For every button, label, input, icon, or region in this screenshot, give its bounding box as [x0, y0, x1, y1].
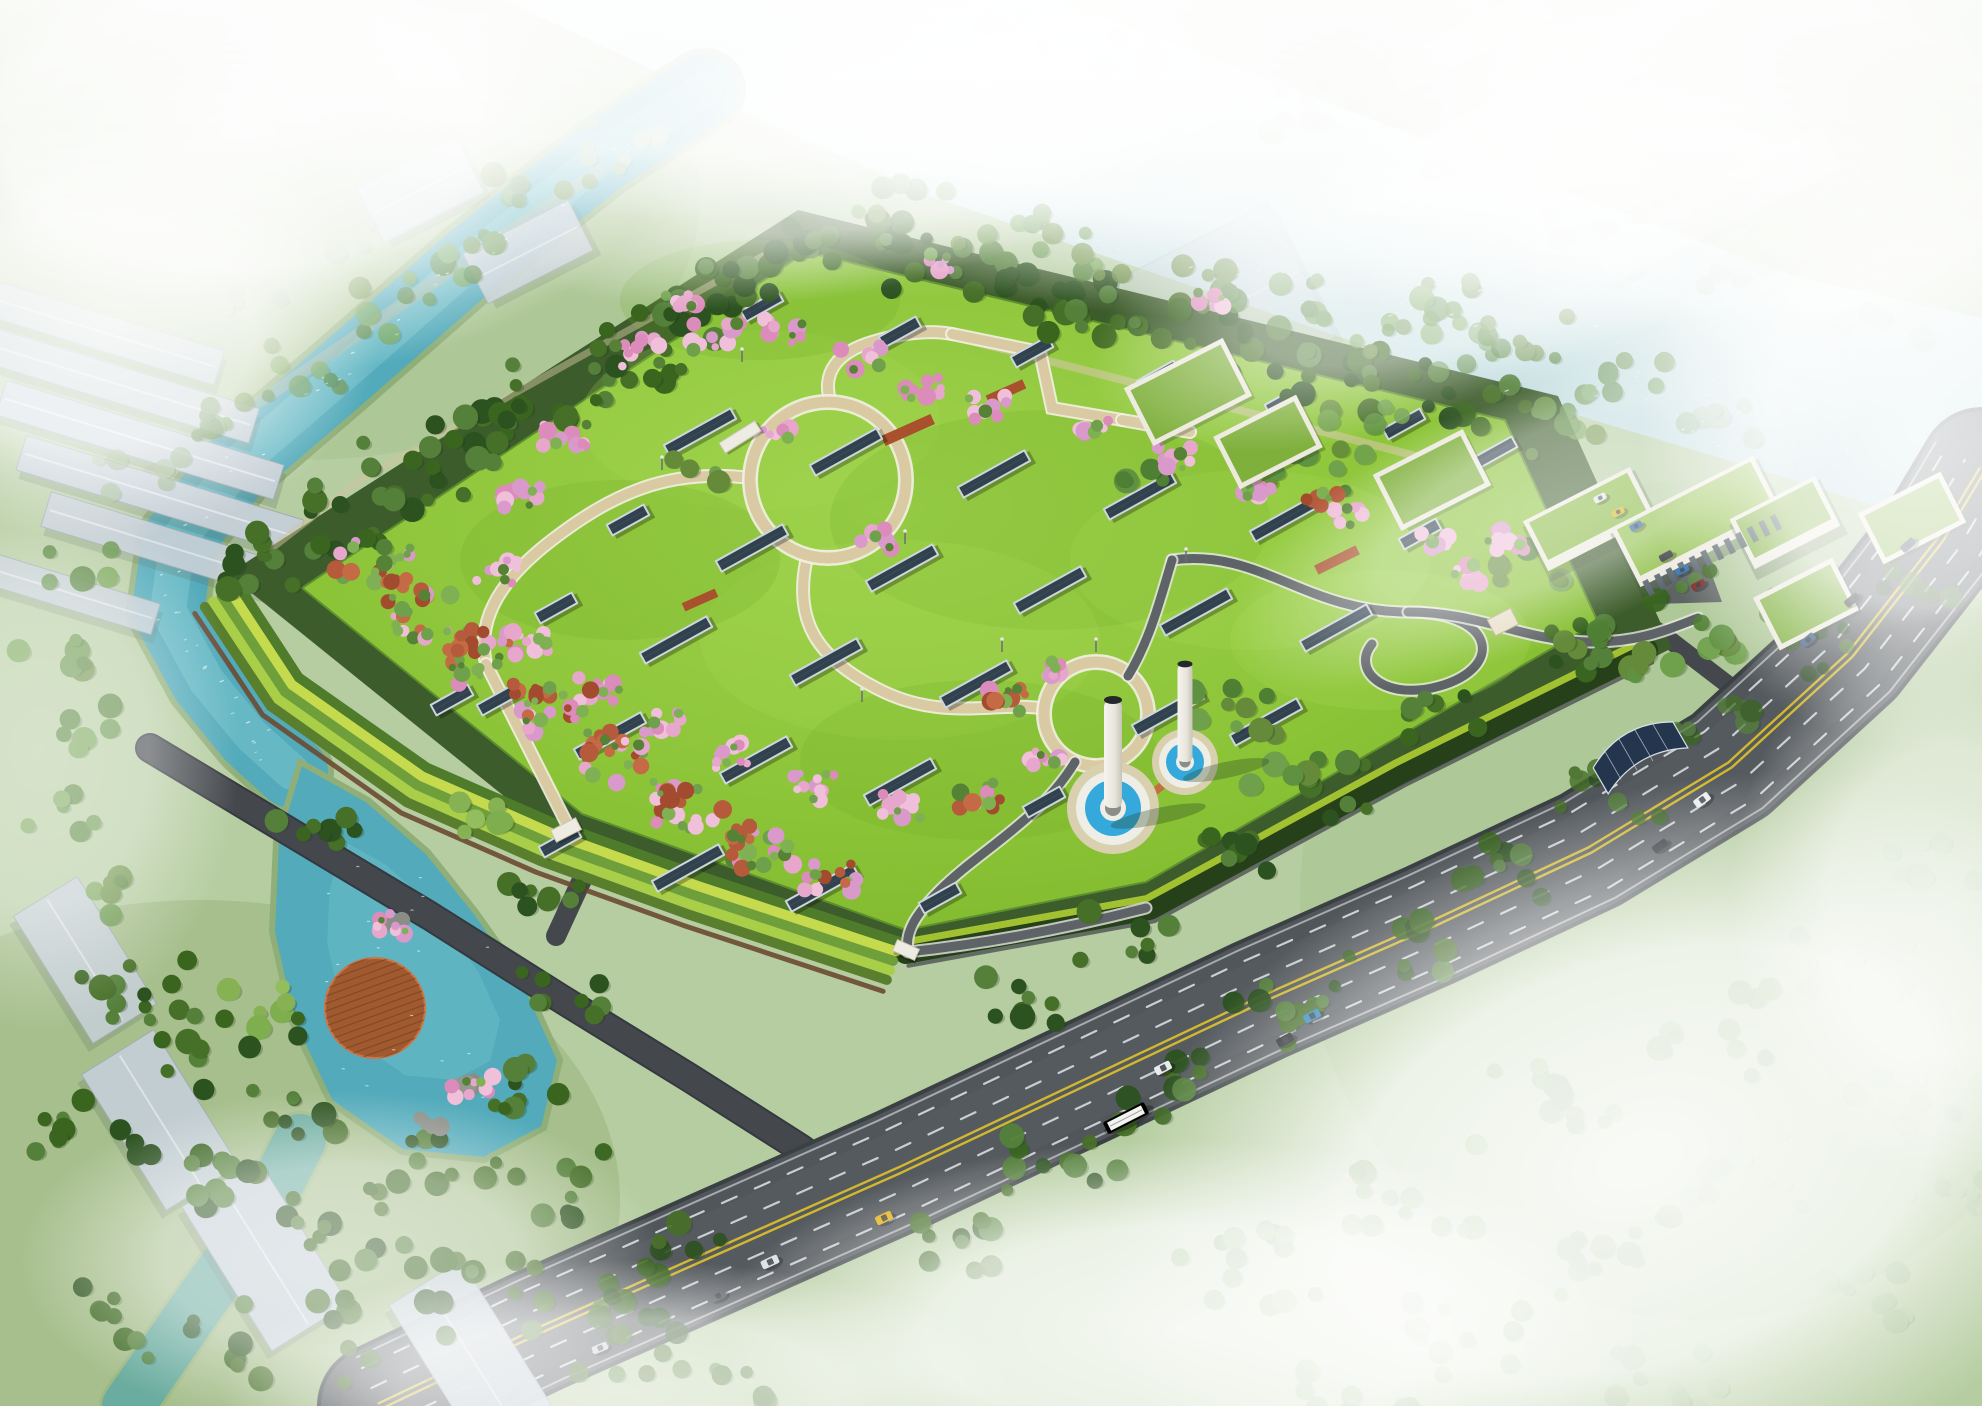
blossom	[814, 785, 826, 797]
tree	[285, 577, 301, 593]
tower-top-opening	[1178, 661, 1193, 668]
bush	[609, 339, 622, 352]
bush	[650, 778, 658, 786]
blossom	[768, 827, 785, 844]
tree	[1259, 688, 1275, 704]
bush	[389, 594, 396, 601]
blossom	[1301, 493, 1313, 505]
tree	[403, 451, 422, 470]
tree	[217, 978, 241, 1002]
blossom	[813, 774, 822, 783]
tree	[215, 1009, 234, 1028]
pond-sparkle	[410, 910, 413, 911]
pond-sparkle	[327, 893, 330, 894]
blossom	[854, 534, 868, 548]
tree	[1583, 656, 1597, 670]
blossom	[829, 770, 838, 779]
lamp-head	[1184, 547, 1188, 551]
blossom	[507, 647, 523, 663]
tree	[291, 1011, 305, 1025]
tree	[999, 1123, 1024, 1148]
bush	[674, 708, 684, 718]
tree	[288, 1026, 307, 1045]
rendering-canvas	[0, 0, 1982, 1406]
bush	[988, 778, 999, 789]
lamp-head	[1000, 637, 1004, 641]
tree	[557, 405, 579, 427]
tree	[675, 363, 687, 375]
bush	[543, 681, 557, 695]
tree	[49, 1127, 68, 1146]
tree	[453, 404, 478, 429]
blossom	[608, 774, 625, 791]
bush	[443, 627, 451, 635]
tree	[426, 415, 445, 434]
tree	[510, 379, 522, 391]
tree	[588, 362, 601, 375]
tree	[193, 1079, 214, 1100]
pond-sparkle	[342, 1068, 345, 1069]
bush	[1091, 420, 1103, 432]
blossom	[514, 565, 521, 572]
blossom	[572, 671, 585, 684]
bush	[849, 365, 858, 374]
tree	[1131, 918, 1151, 938]
pond-sparkle	[417, 950, 420, 951]
tree	[162, 975, 181, 994]
aerial-site-rendering	[0, 0, 1982, 1406]
tree	[1400, 728, 1418, 746]
tree	[1072, 952, 1088, 968]
bush	[900, 385, 909, 394]
blossom	[963, 793, 982, 812]
bush	[797, 319, 806, 328]
bush	[1005, 687, 1012, 694]
pond-sparkle	[421, 896, 424, 897]
bush	[915, 813, 925, 823]
tree	[664, 450, 683, 469]
blossom	[451, 644, 465, 658]
tree	[444, 430, 463, 449]
blossom	[333, 546, 347, 560]
blossom	[511, 556, 522, 567]
blossom	[808, 858, 820, 870]
tree	[296, 827, 311, 842]
blossom	[497, 637, 507, 647]
pond-sparkle	[336, 964, 339, 965]
tree	[1282, 765, 1303, 786]
blossom	[742, 819, 757, 834]
pond-sparkle	[356, 866, 359, 867]
blossom	[917, 387, 936, 406]
bush	[872, 358, 886, 372]
tree	[177, 951, 197, 971]
tree	[535, 971, 551, 987]
blossom	[474, 663, 484, 673]
blossom	[633, 758, 650, 775]
blossom	[706, 331, 718, 343]
tree	[529, 994, 547, 1012]
tree	[425, 460, 440, 475]
blossom	[464, 1089, 475, 1100]
tree	[680, 459, 699, 478]
tree	[713, 1233, 727, 1247]
bush	[624, 760, 633, 769]
bush	[378, 917, 385, 924]
lamp-head	[860, 687, 864, 691]
bush	[476, 672, 483, 679]
bush	[585, 773, 594, 782]
blossom	[536, 438, 551, 453]
blossom	[391, 922, 400, 931]
tree	[449, 791, 471, 813]
blossom	[1001, 397, 1012, 408]
lamp-head	[1094, 637, 1098, 641]
tree	[988, 1008, 1003, 1023]
bush	[500, 575, 510, 585]
tree	[599, 322, 615, 338]
tree	[1634, 659, 1649, 674]
blossom	[618, 362, 627, 371]
tree	[1549, 655, 1563, 669]
tree	[590, 974, 609, 993]
tree	[1235, 697, 1256, 718]
blossom	[892, 790, 907, 805]
bush	[648, 717, 660, 729]
blossom	[650, 337, 667, 354]
blossom	[394, 601, 410, 617]
tree	[974, 965, 998, 989]
tree	[245, 521, 269, 545]
tree	[574, 994, 588, 1008]
bush	[402, 928, 409, 935]
pond-sparkle	[325, 981, 328, 982]
blossom	[737, 758, 745, 766]
bush	[523, 717, 530, 724]
bush	[813, 871, 822, 880]
pond-sparkle	[410, 1015, 413, 1016]
blossom	[686, 317, 701, 332]
tree	[222, 553, 245, 576]
blossom	[878, 789, 889, 800]
blossom	[713, 800, 732, 819]
pond-sparkle	[441, 1060, 444, 1061]
tree	[493, 812, 513, 832]
tree	[72, 1089, 95, 1112]
bush	[539, 637, 552, 650]
bush	[1048, 756, 1061, 769]
fog-veil-top	[0, 0, 1982, 300]
tree	[1022, 991, 1036, 1005]
tree	[466, 809, 485, 828]
bush	[612, 743, 619, 750]
tree	[572, 880, 585, 893]
tree	[265, 809, 289, 833]
bush	[1243, 491, 1253, 501]
tree	[190, 1039, 209, 1058]
blossom	[472, 576, 481, 585]
bush	[662, 807, 676, 821]
bush	[477, 643, 490, 656]
tree	[1141, 938, 1155, 952]
blossom	[533, 713, 548, 728]
tower-cylinder	[1178, 664, 1193, 762]
blossom	[608, 695, 619, 706]
blossom	[797, 882, 812, 897]
pond-sparkle	[392, 1049, 395, 1050]
tree	[517, 896, 537, 916]
tree	[335, 807, 357, 829]
tree	[1660, 652, 1686, 678]
tree	[1468, 718, 1487, 737]
tree	[486, 431, 509, 454]
tree	[1740, 700, 1763, 723]
blossom	[969, 413, 981, 425]
bush	[582, 420, 592, 430]
blossom	[688, 819, 704, 835]
tree	[361, 457, 380, 476]
bush	[600, 735, 610, 745]
bush	[809, 795, 818, 804]
bush	[531, 697, 538, 704]
blossom	[342, 563, 360, 581]
bush	[885, 543, 893, 551]
tree	[1235, 833, 1258, 856]
lamp-head	[903, 529, 907, 533]
blossom	[564, 704, 572, 712]
bush	[458, 662, 464, 668]
tree	[376, 539, 393, 556]
bush	[747, 861, 757, 871]
bush	[1012, 684, 1022, 694]
tree	[1125, 946, 1138, 959]
tree	[456, 487, 471, 502]
blossom	[1184, 456, 1195, 467]
tree	[1569, 766, 1581, 778]
tree	[1010, 1004, 1035, 1029]
blossom	[507, 678, 520, 691]
bush	[406, 544, 415, 553]
bush	[737, 835, 745, 843]
blossom	[933, 373, 943, 383]
tree	[382, 488, 405, 511]
tree	[1329, 460, 1346, 477]
bush	[550, 437, 562, 449]
bush	[870, 530, 882, 542]
bush	[528, 487, 537, 496]
pond-sparkle	[486, 947, 489, 948]
tree	[685, 1241, 704, 1260]
bush	[730, 743, 737, 750]
blossom	[793, 785, 801, 793]
tree	[1340, 796, 1357, 813]
blossom	[835, 867, 846, 878]
tree	[1335, 750, 1360, 775]
tree	[1223, 679, 1242, 698]
tree	[215, 576, 241, 602]
blossom	[840, 878, 850, 888]
tree	[275, 980, 289, 994]
tree	[169, 999, 190, 1020]
blossom	[711, 343, 719, 351]
tree	[1047, 1014, 1065, 1032]
bush	[822, 770, 831, 779]
tower-cylinder	[1104, 700, 1122, 808]
tree	[310, 534, 330, 554]
tree	[457, 825, 472, 840]
bush	[982, 796, 996, 810]
tree	[595, 1143, 612, 1160]
blossom	[504, 623, 522, 641]
tree	[1726, 695, 1742, 711]
blossom	[376, 555, 393, 572]
tree	[590, 340, 607, 357]
tree	[511, 882, 527, 898]
bush	[686, 343, 700, 357]
blossom	[873, 340, 886, 353]
blossom	[833, 341, 849, 357]
bush	[347, 541, 359, 553]
bush	[598, 687, 609, 698]
blossom	[385, 909, 395, 919]
blossom	[477, 626, 489, 638]
tree	[1011, 979, 1026, 994]
tree	[26, 1142, 45, 1161]
blossom	[503, 556, 511, 564]
pond-sparkle	[481, 1097, 484, 1098]
tree	[186, 1008, 203, 1025]
tree	[547, 1083, 570, 1106]
tree	[1239, 773, 1263, 797]
tree	[419, 436, 441, 458]
tree	[1248, 718, 1273, 743]
tower-top-opening	[1104, 696, 1122, 704]
tree	[1458, 689, 1471, 702]
bush	[559, 690, 568, 699]
blossom	[455, 630, 466, 641]
blossom	[1013, 705, 1026, 718]
tree	[1115, 471, 1132, 488]
blossom	[639, 727, 650, 738]
bush	[633, 739, 644, 750]
bush	[615, 686, 623, 694]
blossom	[445, 1079, 459, 1093]
blossom	[1158, 457, 1176, 475]
blossom	[577, 438, 587, 448]
tree	[1681, 721, 1696, 736]
bush	[965, 394, 973, 402]
blossom	[650, 816, 662, 828]
bush	[421, 628, 433, 640]
pond-sparkle	[377, 947, 380, 948]
blossom	[921, 374, 934, 387]
tree	[1201, 827, 1220, 846]
tree	[1075, 320, 1088, 333]
tree	[161, 1064, 175, 1078]
tree	[1221, 850, 1238, 867]
tree	[1037, 321, 1060, 344]
tree	[246, 1084, 259, 1097]
blossom	[787, 770, 800, 783]
blossom	[712, 757, 722, 767]
blossom	[579, 743, 598, 762]
tree	[139, 1000, 152, 1013]
tree	[238, 1036, 261, 1059]
lamp-head	[740, 347, 744, 351]
blossom	[991, 410, 1003, 422]
blossom	[716, 745, 730, 759]
bush	[657, 790, 663, 796]
bush	[1050, 662, 1061, 673]
blossom	[522, 637, 531, 646]
lamp-head	[660, 455, 664, 459]
tree	[1158, 915, 1180, 937]
bush	[653, 357, 665, 369]
tree	[585, 1005, 604, 1024]
blossom	[768, 321, 780, 333]
bush	[730, 317, 743, 330]
tree	[562, 891, 579, 908]
tree	[277, 993, 296, 1012]
tree	[511, 398, 526, 413]
bush	[907, 394, 916, 403]
tree	[1360, 802, 1372, 814]
tree	[1230, 720, 1242, 732]
bush	[894, 807, 901, 814]
pond-sparkle	[365, 1085, 368, 1086]
bush	[393, 626, 404, 637]
blossom	[788, 339, 796, 347]
tree	[1258, 861, 1276, 879]
blossom	[497, 501, 511, 515]
bush	[789, 332, 796, 339]
tree	[307, 477, 323, 493]
tree	[332, 496, 349, 513]
bush	[419, 589, 431, 601]
blossom	[1026, 758, 1041, 773]
tree	[503, 1057, 528, 1082]
tree	[1322, 809, 1339, 826]
pond-sparkle	[367, 921, 370, 922]
bush	[782, 432, 794, 444]
tree	[516, 966, 529, 979]
tree	[538, 887, 560, 909]
blossom	[383, 573, 399, 589]
tree	[1221, 698, 1235, 712]
tree	[144, 1014, 156, 1026]
blossom	[635, 334, 648, 347]
bush	[979, 404, 993, 418]
tree	[666, 1211, 691, 1236]
blossom	[582, 681, 599, 698]
bush	[476, 1077, 485, 1086]
blossom	[441, 586, 460, 605]
blossom	[770, 852, 779, 861]
blossom	[583, 728, 592, 737]
tree	[38, 1112, 52, 1126]
tree	[356, 436, 370, 450]
tree	[505, 357, 520, 372]
bush	[1179, 465, 1185, 471]
blossom	[756, 857, 772, 873]
bush	[526, 501, 533, 508]
tree	[707, 470, 731, 494]
pond-sparkle	[467, 1053, 470, 1054]
blossom	[986, 692, 1003, 709]
blossom	[492, 659, 503, 670]
blossom	[766, 430, 774, 438]
tree	[154, 1031, 171, 1048]
